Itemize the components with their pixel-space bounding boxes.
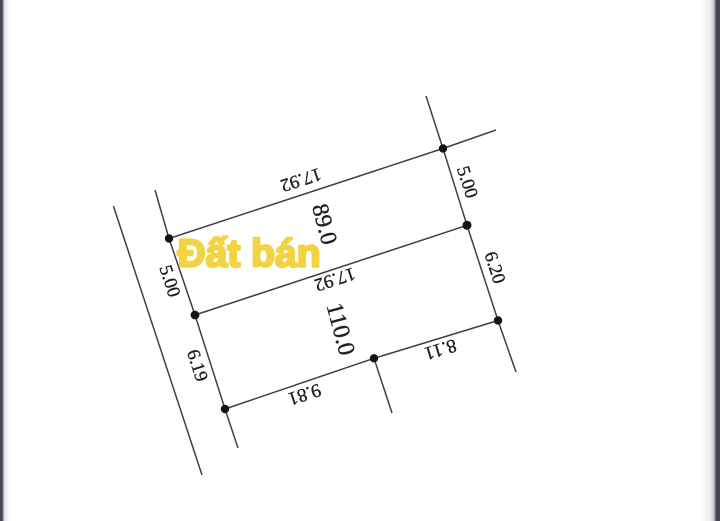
svg-text:Đất bán: Đất bán — [178, 233, 321, 276]
